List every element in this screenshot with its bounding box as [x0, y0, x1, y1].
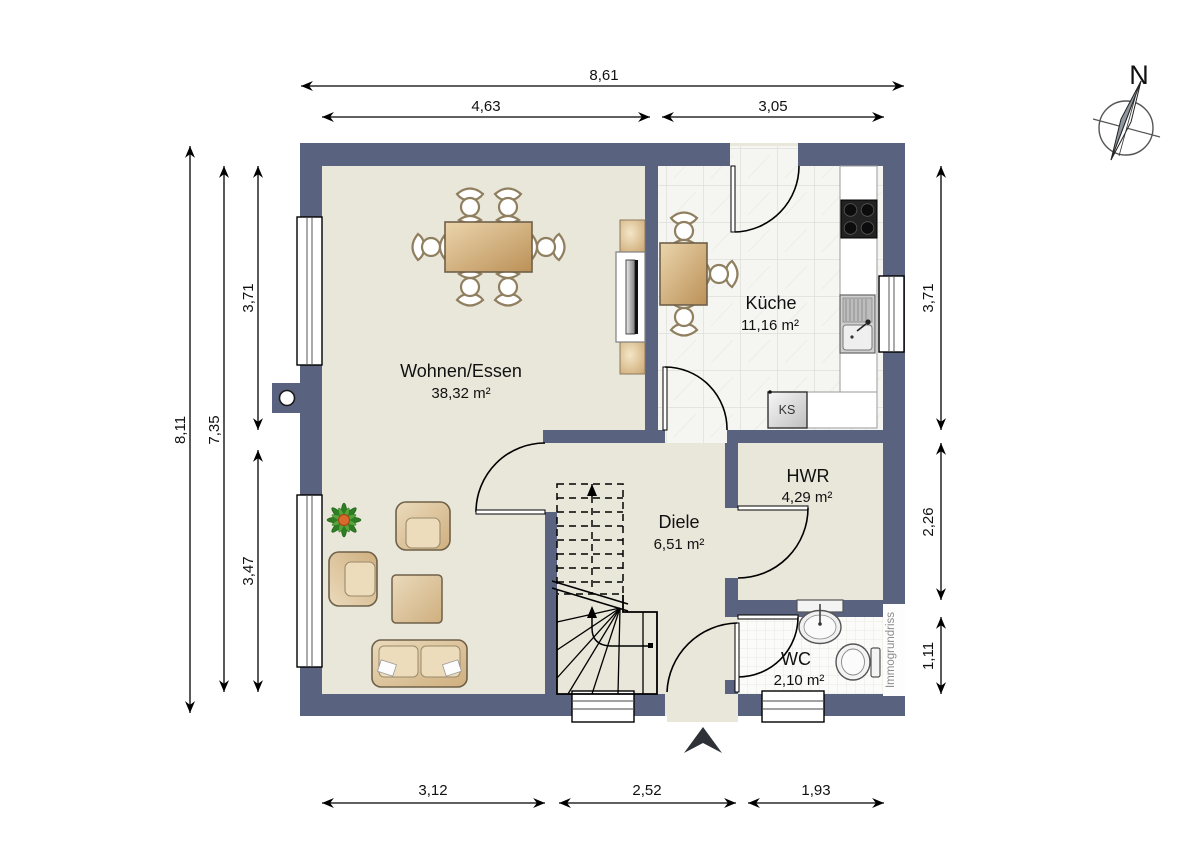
kitchen-chair — [671, 301, 697, 336]
fridge: KS — [768, 390, 807, 428]
stove — [841, 200, 877, 238]
room-label-kueche: Küche — [745, 293, 796, 313]
compass-north-label: N — [1129, 60, 1149, 90]
room-area-diele: 6,51 m² — [654, 536, 705, 553]
door-hwr-part — [738, 506, 808, 510]
stove-part — [844, 222, 857, 235]
wall-living-kitchen — [645, 166, 658, 433]
room-label-wohnen-essen: Wohnen/Essen — [400, 361, 522, 381]
dim-label-bottom-right: 1,93 — [801, 782, 830, 799]
wall-hall-hwr-upper — [725, 443, 738, 508]
dim-label-left-total: 8,11 — [172, 416, 189, 444]
dim-label-right-middle: 2,26 — [920, 507, 937, 536]
stove-part — [844, 204, 857, 217]
toilet-part — [871, 648, 880, 677]
window-stairs-south — [572, 691, 634, 722]
door-kitchen-hall-part — [663, 367, 667, 430]
kitchen-sink-part — [850, 335, 853, 338]
kitchen-sink-part — [843, 298, 872, 322]
dining-chair — [457, 189, 483, 224]
room-area-wohnen-essen: 38,32 m² — [431, 385, 490, 402]
chimney-flue-icon — [280, 391, 295, 406]
armchair — [396, 502, 450, 550]
floor-kitchen-door-gap — [730, 146, 798, 166]
door-wc-part — [738, 615, 798, 619]
dim-label-bottom-middle: 2,52 — [632, 782, 661, 799]
entrance-arrow-icon — [684, 727, 722, 753]
window-left-lower-part — [297, 495, 322, 667]
room-label-wc: WC — [781, 649, 811, 669]
toilet-part — [842, 649, 865, 675]
floor-kitchen-hall-gap — [665, 430, 727, 443]
fridge-part — [768, 390, 772, 394]
tv-screen — [626, 260, 635, 334]
kitchen-chair — [703, 261, 738, 287]
room-area-wc: 2,10 m² — [774, 672, 825, 689]
dining-chair — [413, 234, 448, 260]
window-left-upper-part — [297, 217, 322, 365]
dining-table — [445, 222, 532, 272]
kitchen-chair — [671, 213, 697, 248]
watermark-text: Immogrundriss — [885, 612, 897, 688]
kitchen-counter-south — [807, 392, 877, 428]
toilet — [836, 644, 880, 680]
dim-label-left-upper: 3,71 — [240, 283, 257, 312]
window-left-upper — [297, 217, 322, 365]
door-living-hall-part — [476, 510, 545, 514]
room-area-hwr: 4,29 m² — [782, 489, 833, 506]
floor-plan: KS — [0, 0, 1200, 848]
armchair — [329, 552, 377, 606]
wall-top-left — [300, 143, 730, 166]
compass: N — [1093, 60, 1160, 160]
dim-label-bottom-left: 3,12 — [418, 782, 447, 799]
dim-label-top-left: 4,63 — [471, 98, 500, 115]
dim-label-right-upper: 3,71 — [920, 283, 937, 312]
kitchen-sink-part — [843, 325, 872, 350]
tv-screen-edge — [635, 260, 638, 334]
kitchen-sink-part — [865, 319, 870, 324]
door-entrance-part — [735, 623, 739, 692]
dim-label-top-right: 3,05 — [758, 98, 787, 115]
stairs-walkline-start-dot — [648, 643, 653, 648]
dining-chair — [530, 234, 565, 260]
dim-label-top-total: 8,61 — [589, 67, 618, 84]
dim-label-left-lower: 3,47 — [240, 556, 257, 585]
wall-hall-north-left — [543, 430, 665, 443]
window-kitchen-east — [879, 276, 904, 352]
wc-sink — [797, 600, 843, 644]
stove-part — [861, 222, 874, 235]
room-area-kueche: 11,16 m² — [741, 317, 799, 334]
tv-sideboard — [616, 220, 645, 374]
sideboard-cabinet — [620, 220, 645, 252]
plant-pot — [339, 515, 350, 526]
dining-chair — [495, 189, 521, 224]
door-kitchen-exterior-part — [731, 166, 735, 232]
window-stairs-south-part — [572, 691, 634, 722]
wall-kitchen-south — [727, 430, 883, 443]
sideboard-cabinet — [620, 342, 645, 374]
dim-label-left-inner: 7,35 — [206, 415, 223, 444]
plant — [327, 503, 361, 537]
wall-living-hall — [545, 512, 557, 694]
floor-entrance-strip — [667, 694, 738, 722]
coffee-table — [392, 575, 442, 623]
stove-part — [861, 204, 874, 217]
room-label-diele: Diele — [658, 512, 699, 532]
window-left-lower — [297, 495, 322, 667]
window-wc-south — [762, 691, 824, 722]
wall-hall-hwr-lower — [725, 578, 738, 617]
room-label-hwr: HWR — [787, 466, 830, 486]
fridge-label: KS — [779, 403, 796, 417]
floor-plan-canvas: KS — [0, 0, 1200, 848]
kitchen-sink — [840, 295, 875, 353]
window-kitchen-east-part — [879, 276, 904, 352]
wc-sink-part — [818, 622, 822, 626]
dim-label-right-lower: 1,11 — [920, 642, 937, 670]
window-wc-south-part — [762, 691, 824, 722]
sofa — [372, 640, 467, 687]
kitchen-table — [660, 243, 707, 305]
dining-chair — [495, 271, 521, 306]
dining-chair — [457, 271, 483, 306]
